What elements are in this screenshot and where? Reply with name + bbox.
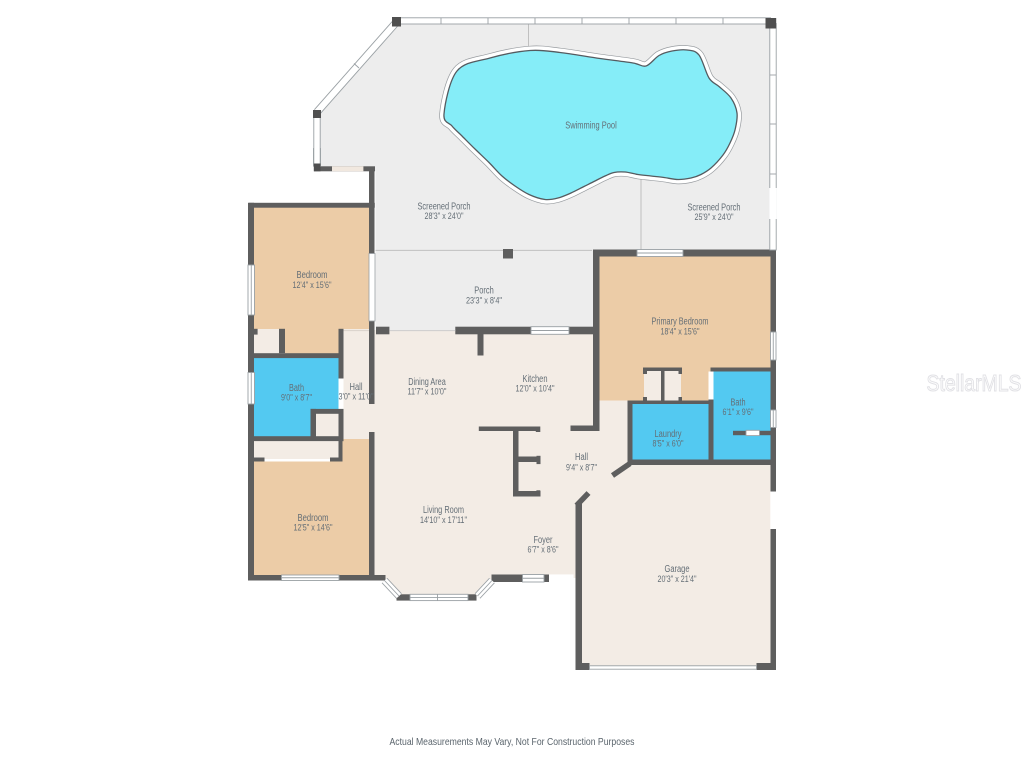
- svg-text:25'9" x 24'0": 25'9" x 24'0": [695, 212, 734, 222]
- svg-text:18'4" x 15'6": 18'4" x 15'6": [661, 326, 700, 336]
- svg-text:12'4" x 15'6": 12'4" x 15'6": [293, 280, 332, 290]
- svg-text:6'7" x 8'6": 6'7" x 8'6": [528, 545, 559, 555]
- svg-text:Swimming Pool: Swimming Pool: [565, 121, 617, 132]
- svg-text:12'0" x 10'4": 12'0" x 10'4": [516, 384, 555, 394]
- svg-text:11'7" x 10'0": 11'7" x 10'0": [408, 387, 447, 397]
- svg-text:6'1" x 9'6": 6'1" x 9'6": [723, 407, 754, 417]
- svg-text:14'10" x 17'11": 14'10" x 17'11": [420, 515, 467, 525]
- svg-text:9'0" x 8'7": 9'0" x 8'7": [281, 393, 312, 403]
- svg-text:Actual Measurements May Vary,: Actual Measurements May Vary, Not For Co…: [390, 737, 635, 748]
- svg-text:StellarMLS: StellarMLS: [927, 370, 1022, 396]
- svg-text:20'3" x 21'4": 20'3" x 21'4": [658, 574, 697, 584]
- svg-text:12'5" x 14'6": 12'5" x 14'6": [294, 523, 333, 533]
- svg-text:Hall: Hall: [575, 452, 588, 463]
- svg-text:3'0" x 11'0": 3'0" x 11'0": [339, 392, 374, 402]
- svg-text:8'5" x 6'0": 8'5" x 6'0": [653, 439, 684, 449]
- svg-text:28'3" x 24'0": 28'3" x 24'0": [425, 211, 464, 221]
- svg-text:23'3" x 8'4": 23'3" x 8'4": [466, 295, 502, 305]
- svg-text:9'4" x 8'7": 9'4" x 8'7": [566, 463, 597, 473]
